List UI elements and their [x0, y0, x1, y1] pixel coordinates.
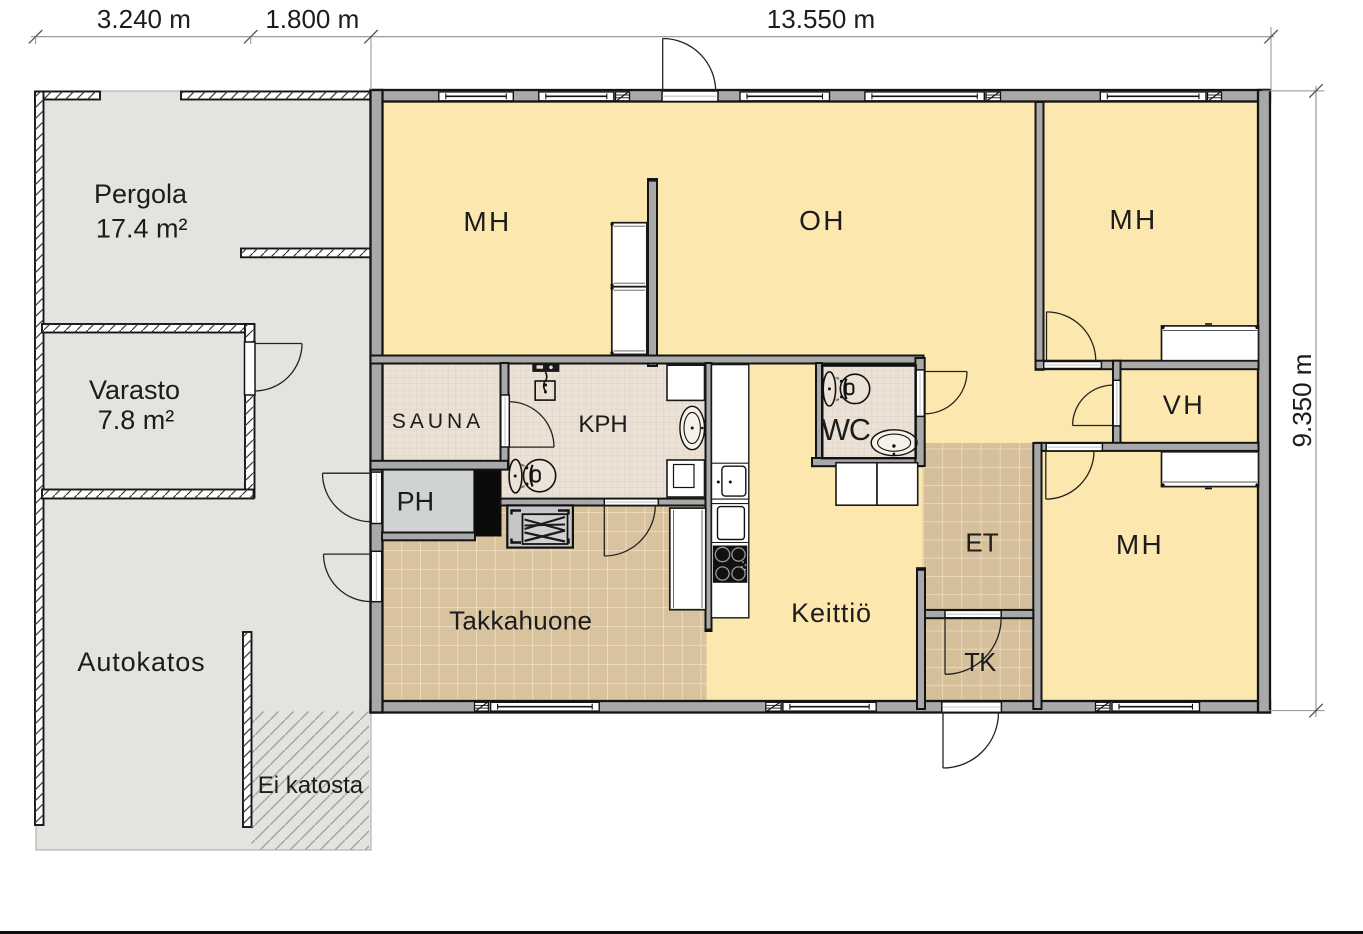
svg-text:Keittiö: Keittiö — [791, 598, 872, 628]
svg-text:Pergola: Pergola — [94, 179, 188, 209]
svg-text:Autokatos: Autokatos — [77, 647, 205, 677]
svg-text:13.550 m: 13.550 m — [767, 4, 875, 34]
svg-text:Takkahuone: Takkahuone — [449, 606, 592, 636]
svg-text:WC: WC — [821, 413, 870, 447]
svg-text:MH: MH — [1116, 529, 1164, 560]
svg-text:ET: ET — [965, 528, 998, 558]
svg-text:3.240 m: 3.240 m — [97, 4, 191, 34]
svg-text:17.4 m²: 17.4 m² — [96, 214, 188, 244]
svg-text:9.350 m: 9.350 m — [1287, 354, 1317, 448]
svg-text:VH: VH — [1163, 390, 1206, 420]
svg-text:Varasto: Varasto — [89, 375, 180, 405]
svg-text:MH: MH — [1109, 204, 1157, 235]
svg-text:PH: PH — [397, 487, 435, 517]
svg-text:SAUNA: SAUNA — [392, 410, 484, 433]
svg-text:7.8 m²: 7.8 m² — [98, 405, 175, 435]
svg-text:1.800 m: 1.800 m — [265, 4, 359, 34]
svg-text:KPH: KPH — [578, 411, 627, 438]
svg-text:MH: MH — [463, 206, 511, 237]
svg-text:OH: OH — [799, 205, 846, 236]
svg-text:TK: TK — [964, 649, 996, 677]
svg-text:Ei katosta: Ei katosta — [258, 772, 364, 799]
